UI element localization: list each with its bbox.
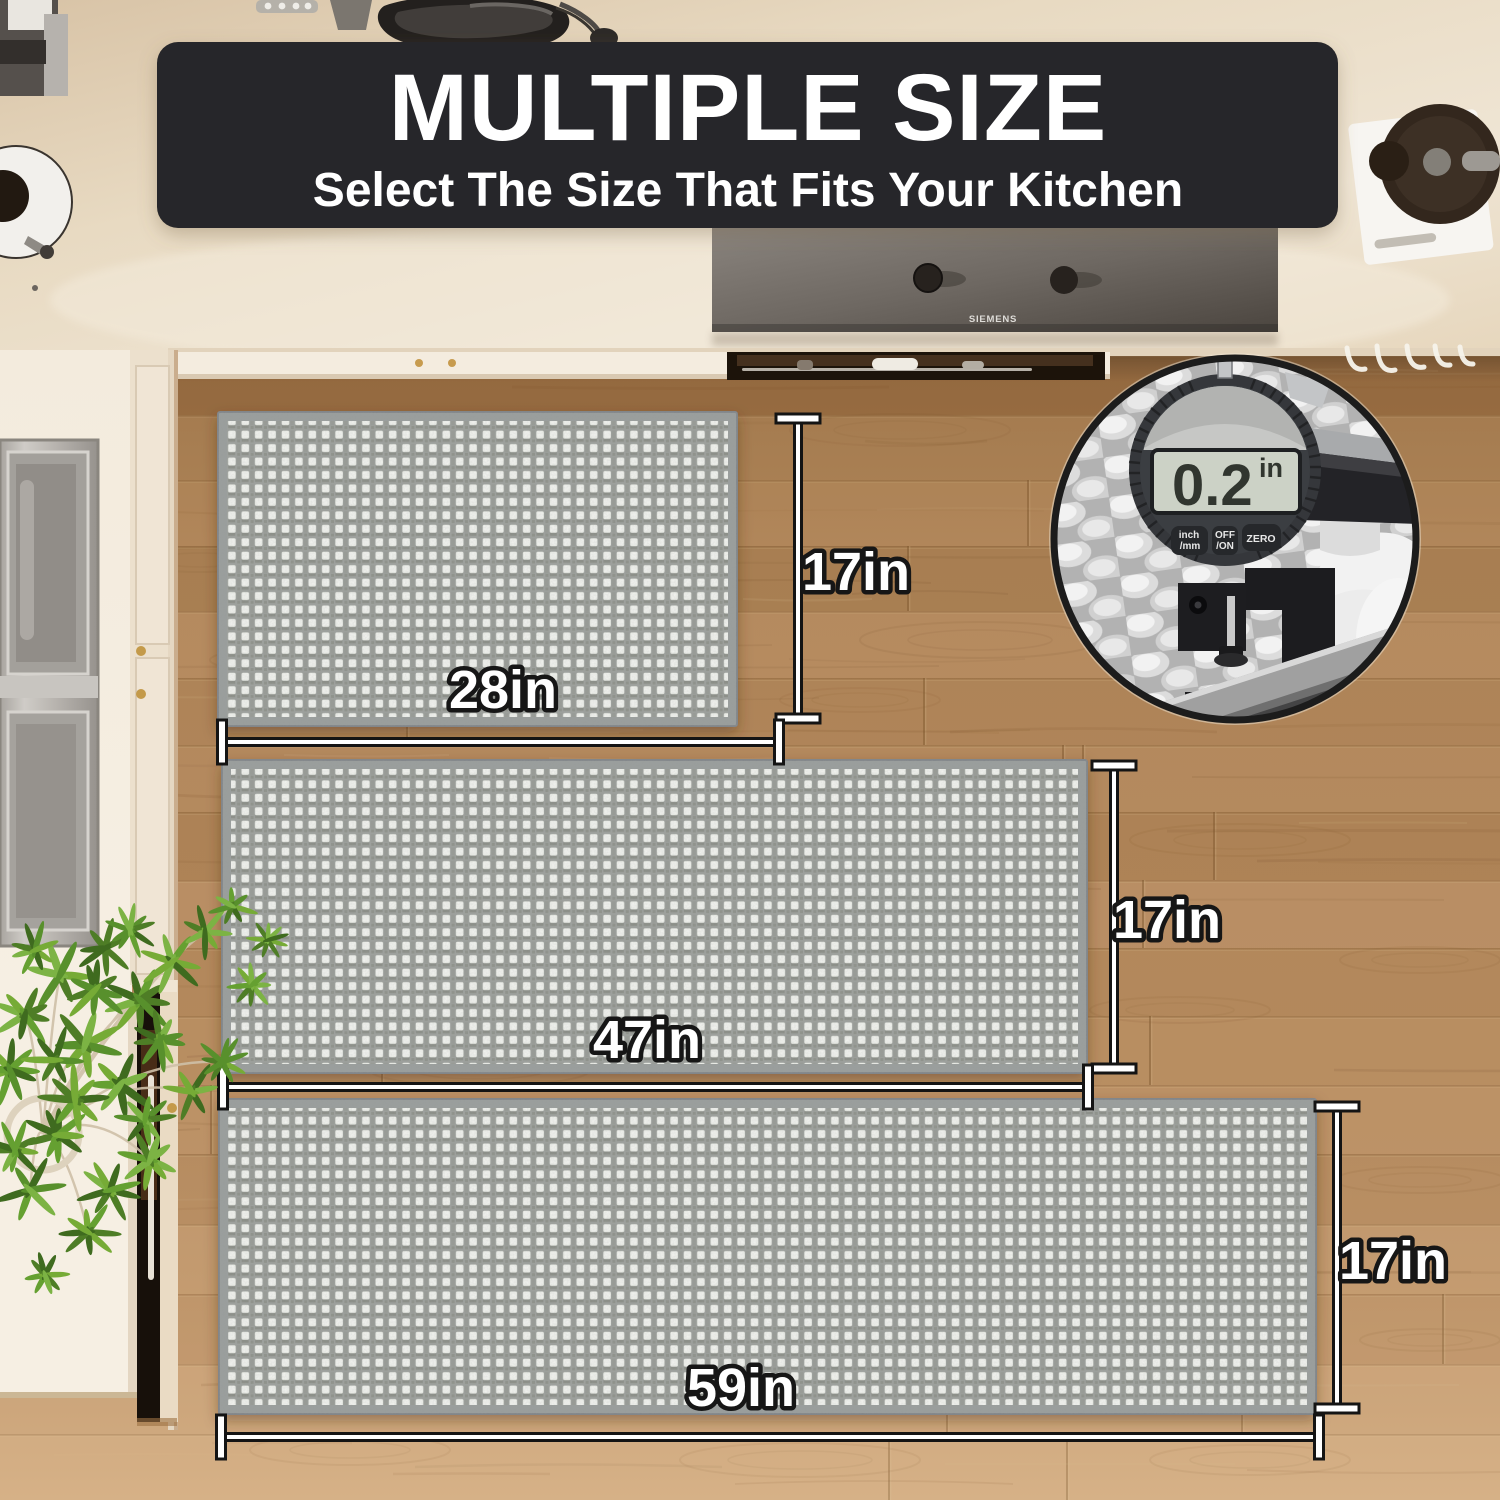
svg-text:47in: 47in — [593, 1010, 701, 1070]
svg-text:/mm: /mm — [1180, 541, 1201, 552]
svg-text:OFF: OFF — [1215, 530, 1235, 541]
svg-text:17in: 17in — [1113, 890, 1221, 950]
svg-text:inch: inch — [1179, 530, 1200, 541]
svg-text:28in: 28in — [449, 660, 557, 720]
svg-text:59in: 59in — [687, 1358, 795, 1418]
svg-text:MULTIPLE SIZE: MULTIPLE SIZE — [389, 55, 1107, 161]
svg-text:17in: 17in — [802, 542, 910, 602]
svg-text:in: in — [1259, 453, 1283, 483]
svg-text:Select The Size That Fits Your: Select The Size That Fits Your Kitchen — [313, 164, 1183, 217]
svg-text:17in: 17in — [1339, 1231, 1447, 1291]
svg-text:/ON: /ON — [1216, 541, 1234, 552]
svg-text:SIEMENS: SIEMENS — [969, 314, 1017, 325]
svg-text:0.2: 0.2 — [1172, 453, 1253, 518]
svg-text:ZERO: ZERO — [1246, 533, 1275, 545]
